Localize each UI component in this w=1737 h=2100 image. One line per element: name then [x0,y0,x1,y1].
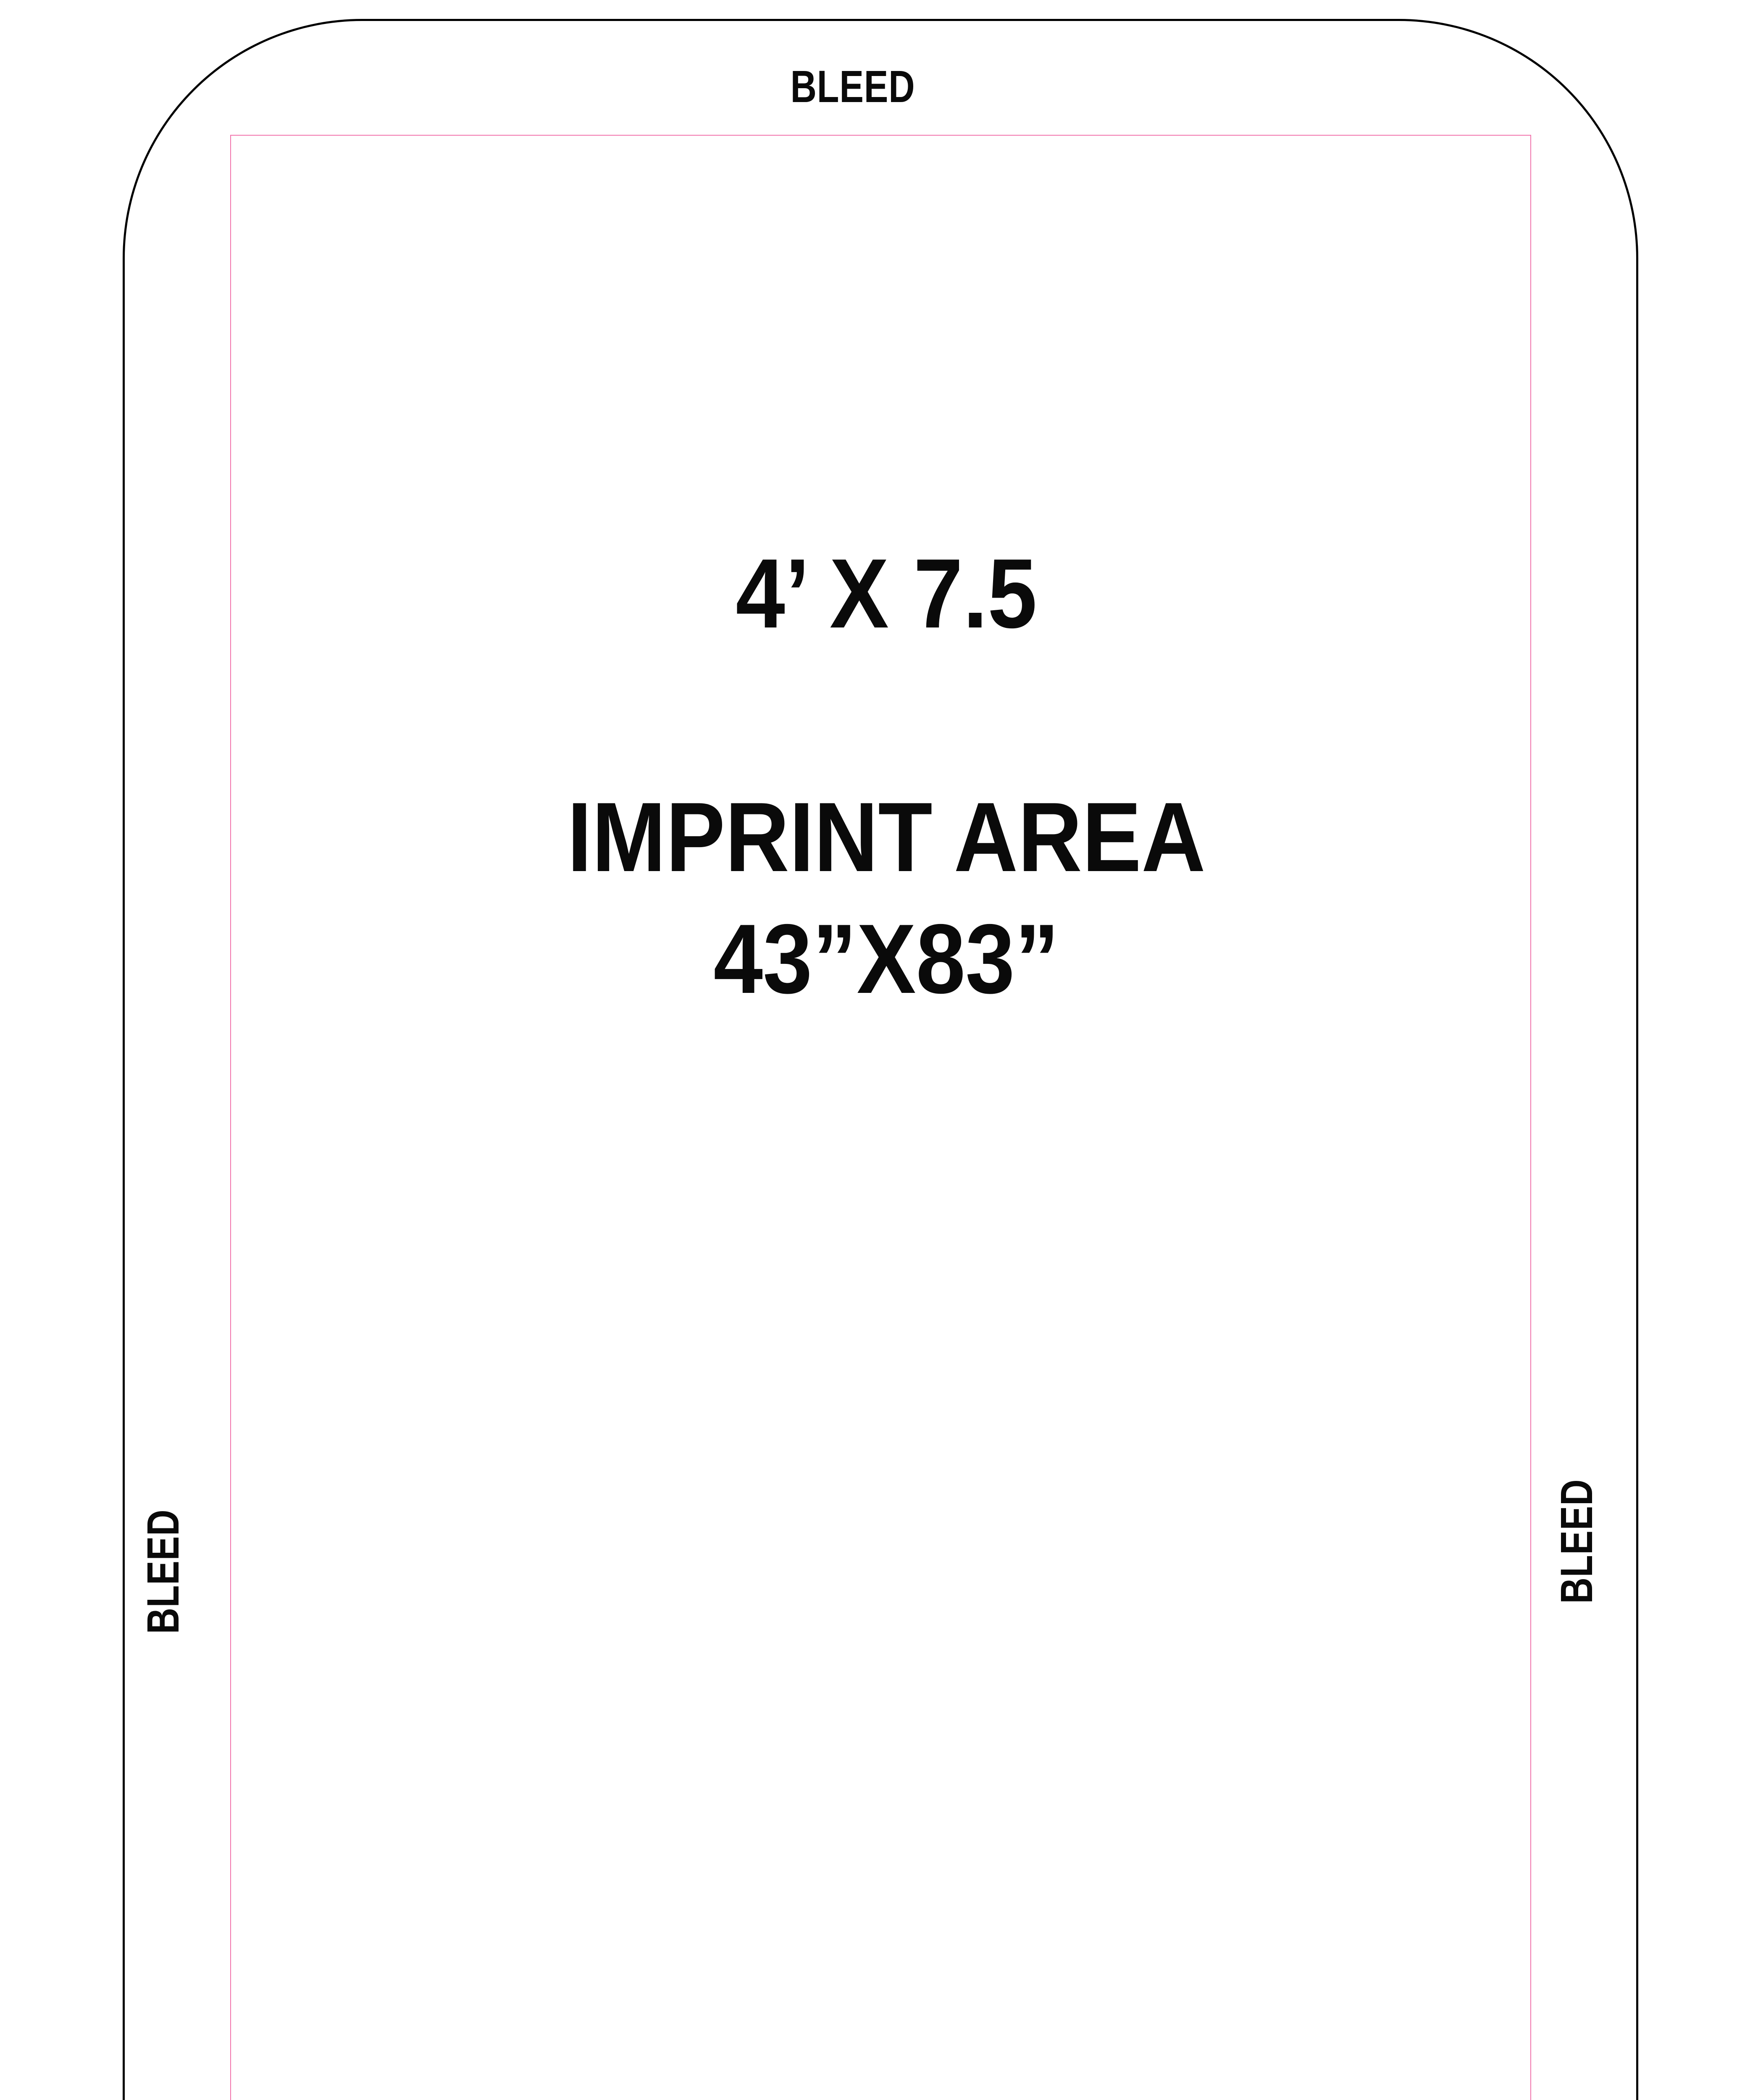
bleed-label-right: BLEED [1554,1479,1599,1604]
imprint-area-title: IMPRINT AREA [567,776,1206,898]
bleed-label-top: BLEED [791,64,915,109]
imprint-area-outline [230,135,1531,2100]
banner-size-label: 4’ X 7.5 [567,533,1206,654]
center-text-block: 4’ X 7.5 IMPRINT AREA 43”X83” [532,533,1241,1020]
bleed-label-left: BLEED [140,1509,186,1634]
banner-stand-template: BLEED BLEED BLEED 4’ X 7.5 IMPRINT AREA … [0,0,1737,2100]
imprint-area-dimensions: 43”X83” [567,898,1206,1020]
